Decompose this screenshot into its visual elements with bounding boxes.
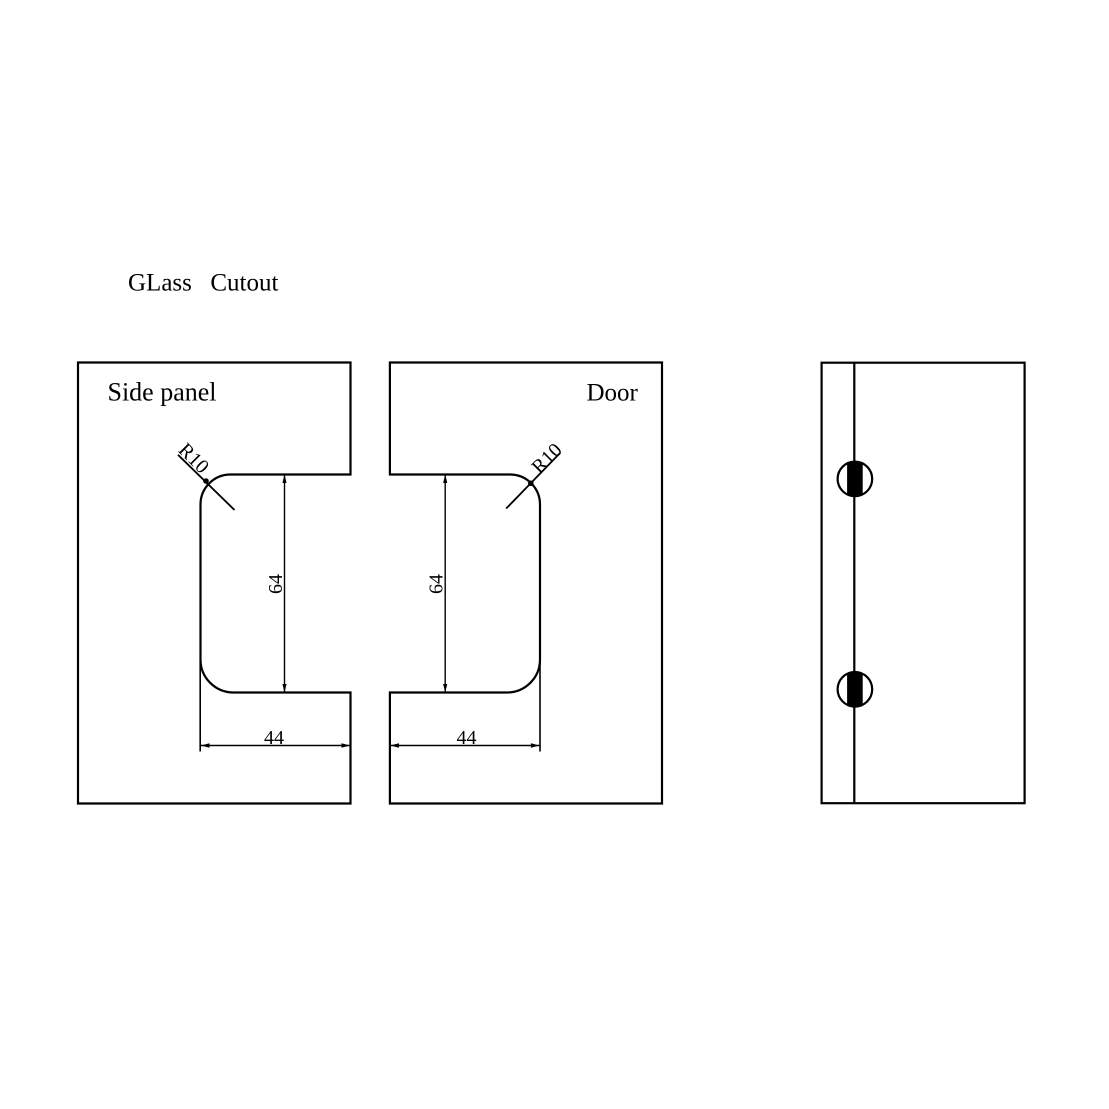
svg-text:GLass Cutout: GLass Cutout: [128, 270, 279, 297]
svg-text:44: 44: [264, 727, 284, 749]
svg-text:44: 44: [457, 727, 477, 749]
svg-text:Door: Door: [587, 380, 639, 407]
svg-text:64: 64: [265, 574, 287, 594]
svg-text:Side panel: Side panel: [108, 378, 217, 407]
svg-text:64: 64: [426, 574, 448, 594]
